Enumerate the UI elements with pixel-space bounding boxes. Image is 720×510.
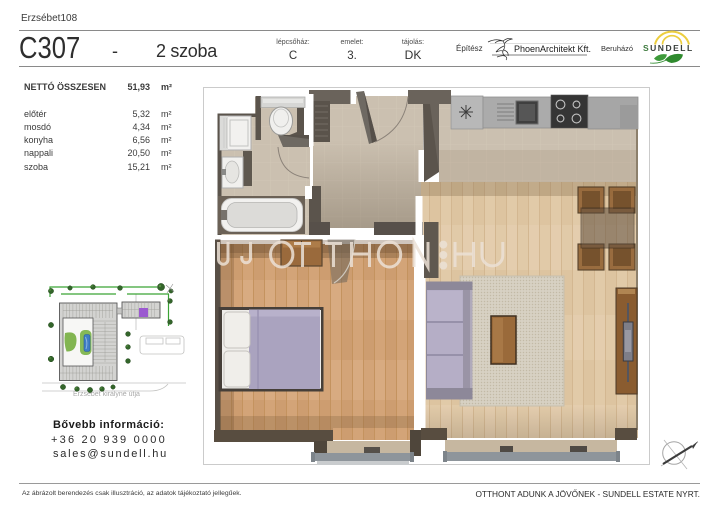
svg-text:SUNDELL: SUNDELL xyxy=(643,43,694,53)
